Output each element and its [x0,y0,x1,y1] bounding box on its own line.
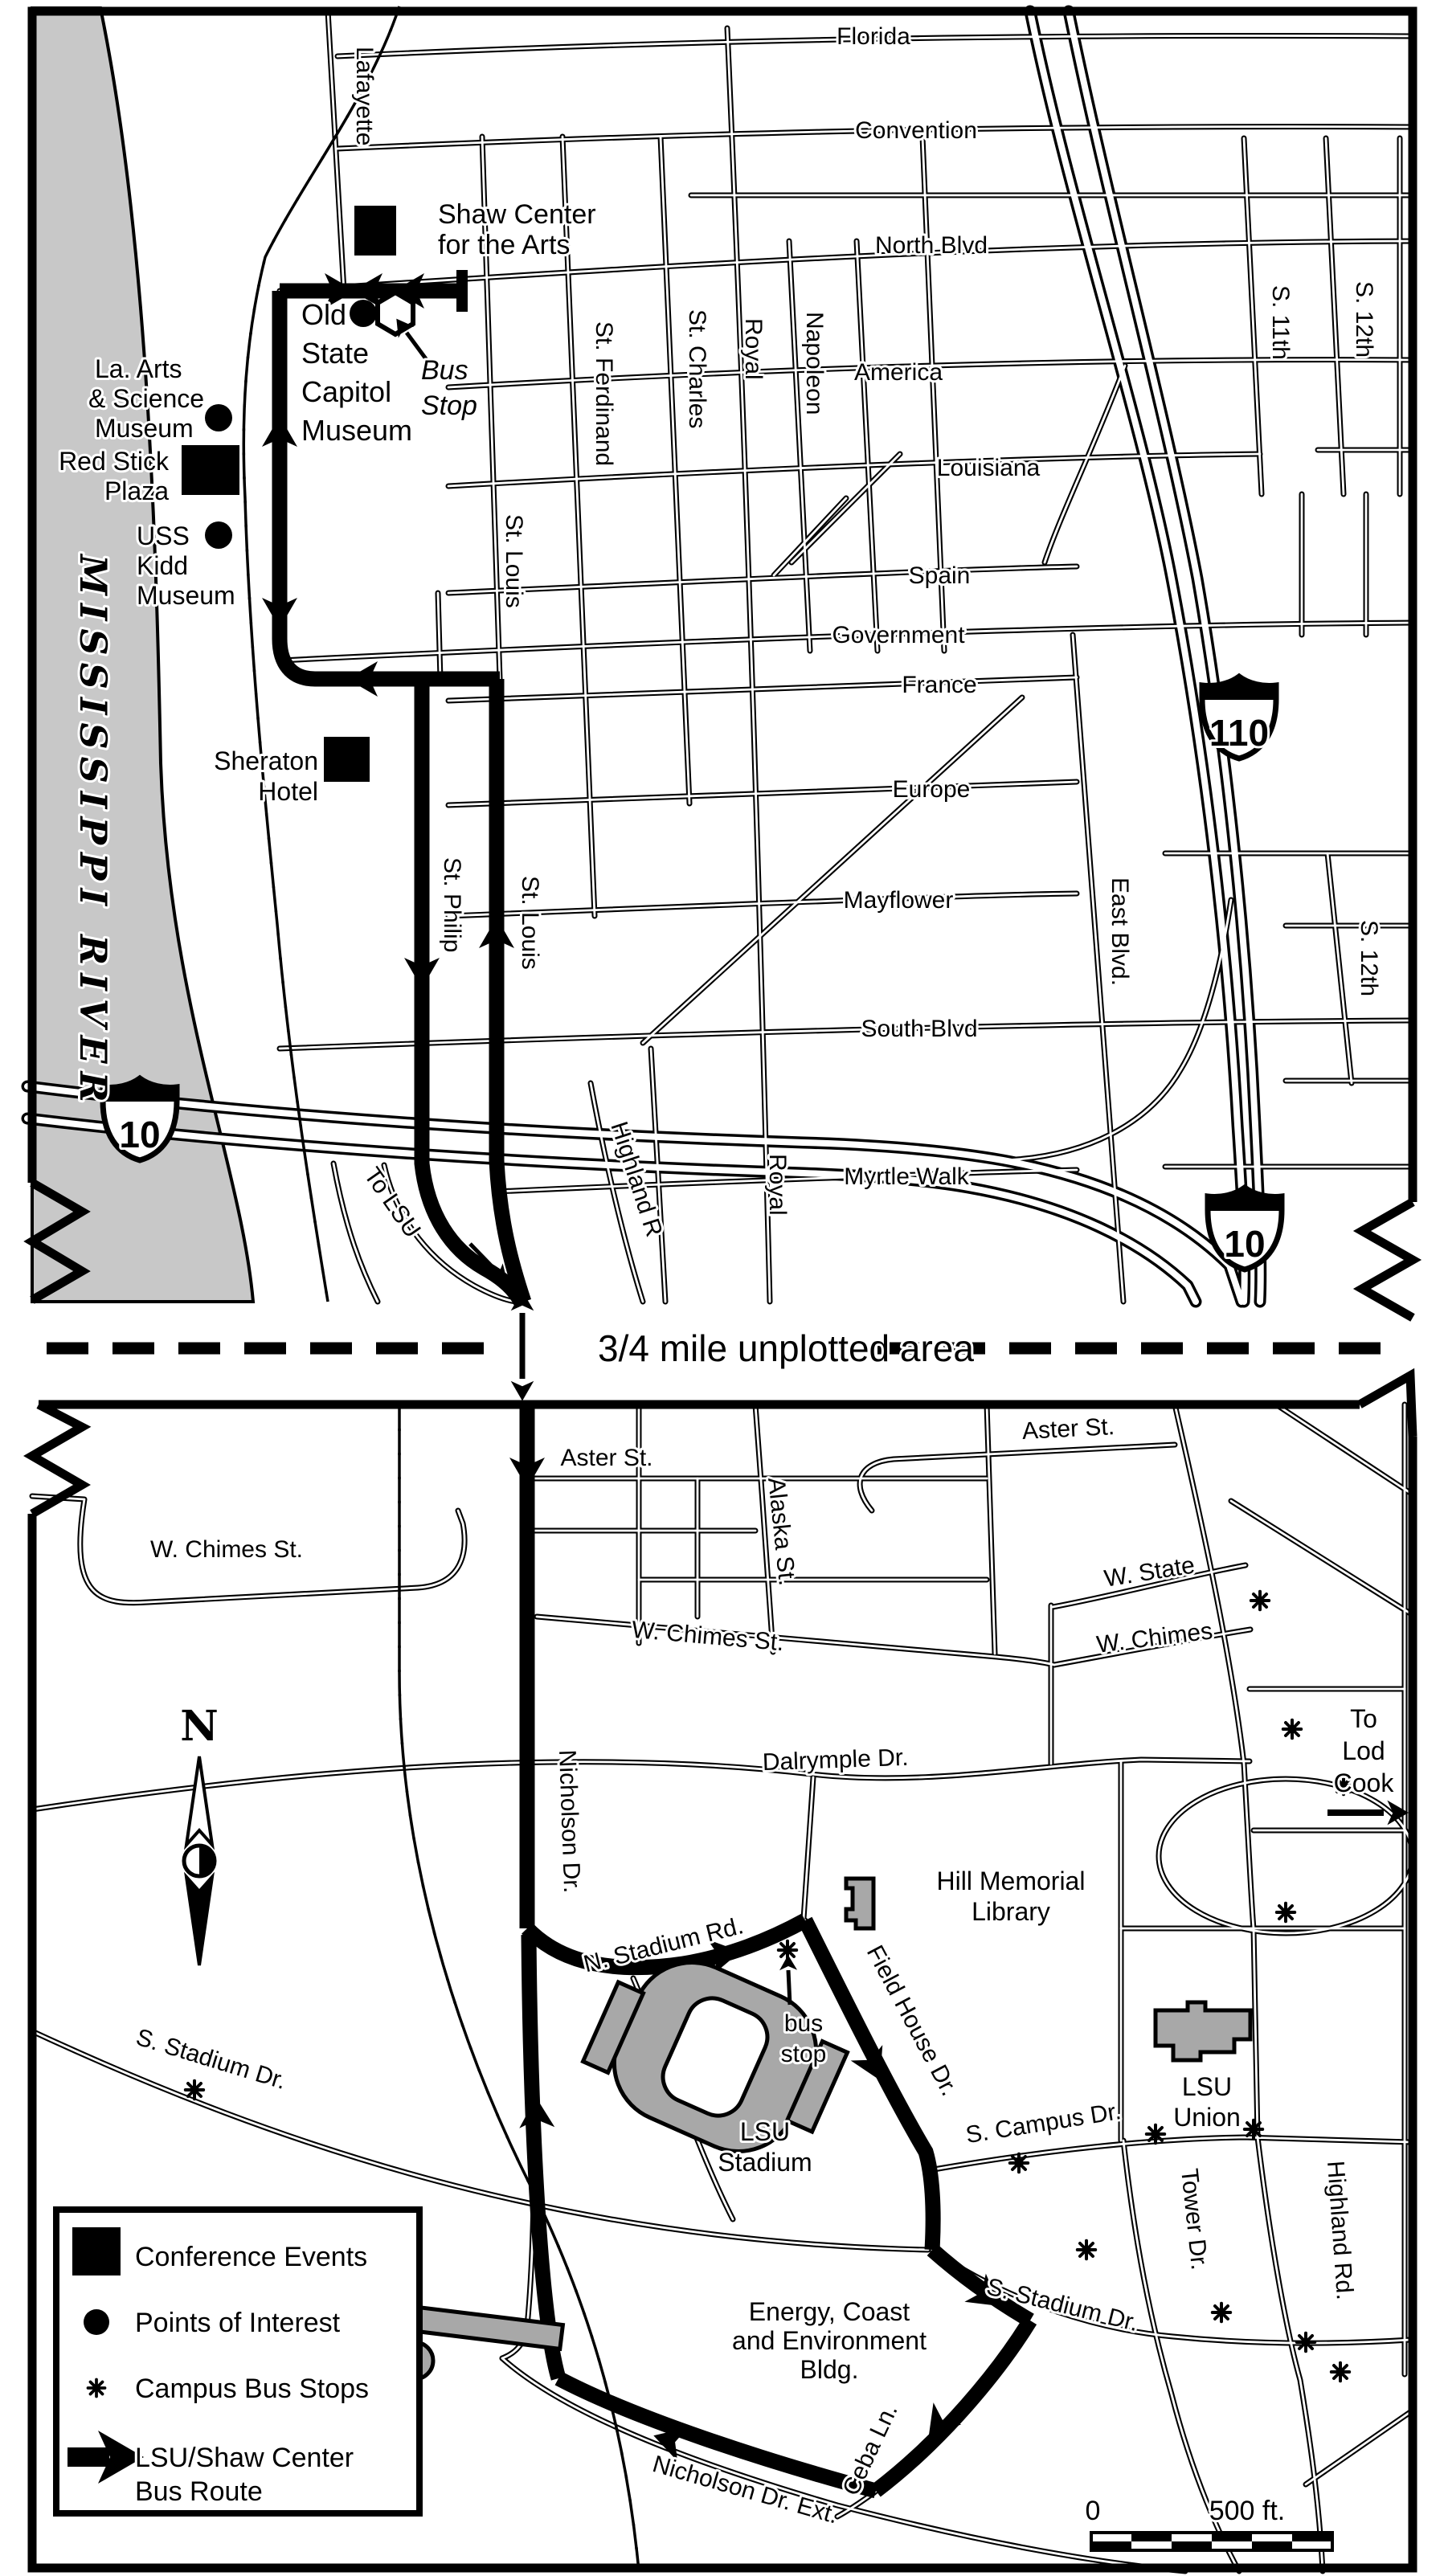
legend: Conference Events Points of Interest Cam… [56,2210,419,2513]
street-label-st-charles: St. Charles [684,309,710,428]
label-campus-bus-stop-2: stop [781,2041,827,2067]
label-bus-stop-1: Bus [421,355,468,386]
street-label-east-blvd: East Blvd. [1107,877,1133,986]
label-lod-3: Cook [1334,1768,1395,1797]
label-hill-1: Hill Memorial [937,1867,1086,1895]
legend-poi-dot [84,2309,109,2335]
street-label-w-chimes-st-left: W. Chimes St. [150,1536,303,1563]
label-lod-2: Lod [1342,1736,1385,1765]
label-capitol-1: Old [301,298,346,331]
legend-route-label-1: LSU/Shaw Center [135,2443,354,2473]
label-energy-1: Energy, Coast [749,2297,910,2326]
label-energy-2: and Environment [732,2326,927,2355]
arts-science-museum-dot [205,404,232,431]
street-label-napoleon: Napoleon [801,312,828,415]
legend-conference-swatch [72,2227,121,2275]
label-sheraton-2: Hotel [258,777,318,806]
label-kidd-2: Kidd [137,551,188,580]
legend-poi-label: Points of Interest [135,2308,341,2338]
compass-n-label: N [180,1702,219,1751]
legend-bus-stop-star [88,2380,105,2397]
scale-zero: 0 [1086,2496,1101,2526]
street-label-myrtle-walk: Myrtle Walk [844,1163,970,1190]
interstate-110-shield: 110 [1202,677,1276,758]
street-label-america: America [854,359,943,386]
legend-bus-stops-label: Campus Bus Stops [135,2374,369,2404]
label-capitol-4: Museum [301,414,412,447]
street-label-s-12th-lower: S. 12th [1356,920,1382,996]
route-terminus-bar [456,270,468,312]
shield-110-number: 110 [1209,712,1269,754]
label-stadium-1: LSU [740,2117,790,2146]
shield-10-number-2: 10 [1224,1223,1265,1265]
street-label-aster-left: Aster St. [560,1445,652,1471]
street-label-government: Government [832,622,965,648]
downtown-bus-stop-hexagon [378,292,413,334]
street-label-spain: Spain [909,562,971,589]
street-label-france: France [902,672,976,698]
street-label-convention: Convention [855,117,977,144]
street-label-mayflower: Mayflower [844,887,954,914]
label-arts-3: Museum [95,414,194,443]
label-arts-2: & Science [88,384,204,413]
street-label-south-blvd: South Blvd [861,1016,977,1042]
label-hill-2: Library [972,1897,1050,1926]
label-campus-bus-stop-1: bus [784,2010,823,2037]
divider-label: 3/4 mile unplotted area [598,1327,974,1369]
street-label-aster-right: Aster St. [1021,1413,1115,1445]
street-label-st-louis-upper: St. Louis [501,514,527,608]
street-label-dalrymple: Dalrymple Dr. [762,1744,909,1776]
label-stadium-2: Stadium [718,2148,812,2177]
label-lod-1: To [1350,1704,1377,1733]
street-label-royal-upper: Royal [740,318,767,380]
label-energy-3: Bldg. [800,2355,859,2384]
label-capitol-2: State [301,337,369,370]
street-label-florida: Florida [837,23,910,50]
label-capitol-3: Capitol [301,375,391,408]
label-union-1: LSU [1182,2072,1232,2101]
legend-conference-label: Conference Events [135,2242,367,2272]
river-label: MISSISSIPPI RIVER [72,553,115,1110]
street-label-st-philip: St. Philip [439,857,465,952]
scale-label: 500 ft. [1209,2496,1286,2526]
label-shaw-center-1: Shaw Center [438,199,596,230]
bus-route-map: 110 10 10 Florida Convention North Blvd … [0,0,1444,2576]
street-label-st-ferdinand: St. Ferdinand [591,321,617,466]
label-shaw-center-2: for the Arts [438,230,570,260]
label-redstick-2: Plaza [104,476,169,505]
street-label-europe: Europe [893,776,971,803]
legend-route-label-2: Bus Route [135,2476,263,2507]
street-label-royal-lower: Royal [764,1154,791,1216]
uss-kidd-museum-dot [205,521,232,549]
label-bus-stop-2: Stop [421,390,477,421]
label-union-2: Union [1173,2103,1241,2132]
shield-10-number: 10 [119,1114,160,1155]
old-state-capitol-dot [350,300,377,327]
sheraton-hotel-square [324,737,370,782]
street-label-nicholson: Nicholson Dr. [554,1749,585,1893]
street-label-s-12th-upper: S. 12th [1351,281,1377,358]
label-kidd-3: Museum [137,581,235,610]
map-page: 110 10 10 Florida Convention North Blvd … [0,0,1444,2576]
label-arts-1: La. Arts [95,354,182,383]
street-label-north-blvd: North Blvd [875,232,988,259]
street-label-s-11th: S. 11th [1267,285,1294,360]
shaw-center-square [354,206,396,256]
street-label-louisiana: Louisiana [937,455,1041,481]
label-redstick-1: Red Stick [59,447,170,476]
street-label-lafayette: Lafayette [351,47,378,145]
street-label-st-louis-lower: St. Louis [517,876,543,970]
label-sheraton-1: Sheraton [214,746,318,775]
red-stick-plaza-square [182,445,239,495]
label-kidd-1: USS [137,521,190,550]
